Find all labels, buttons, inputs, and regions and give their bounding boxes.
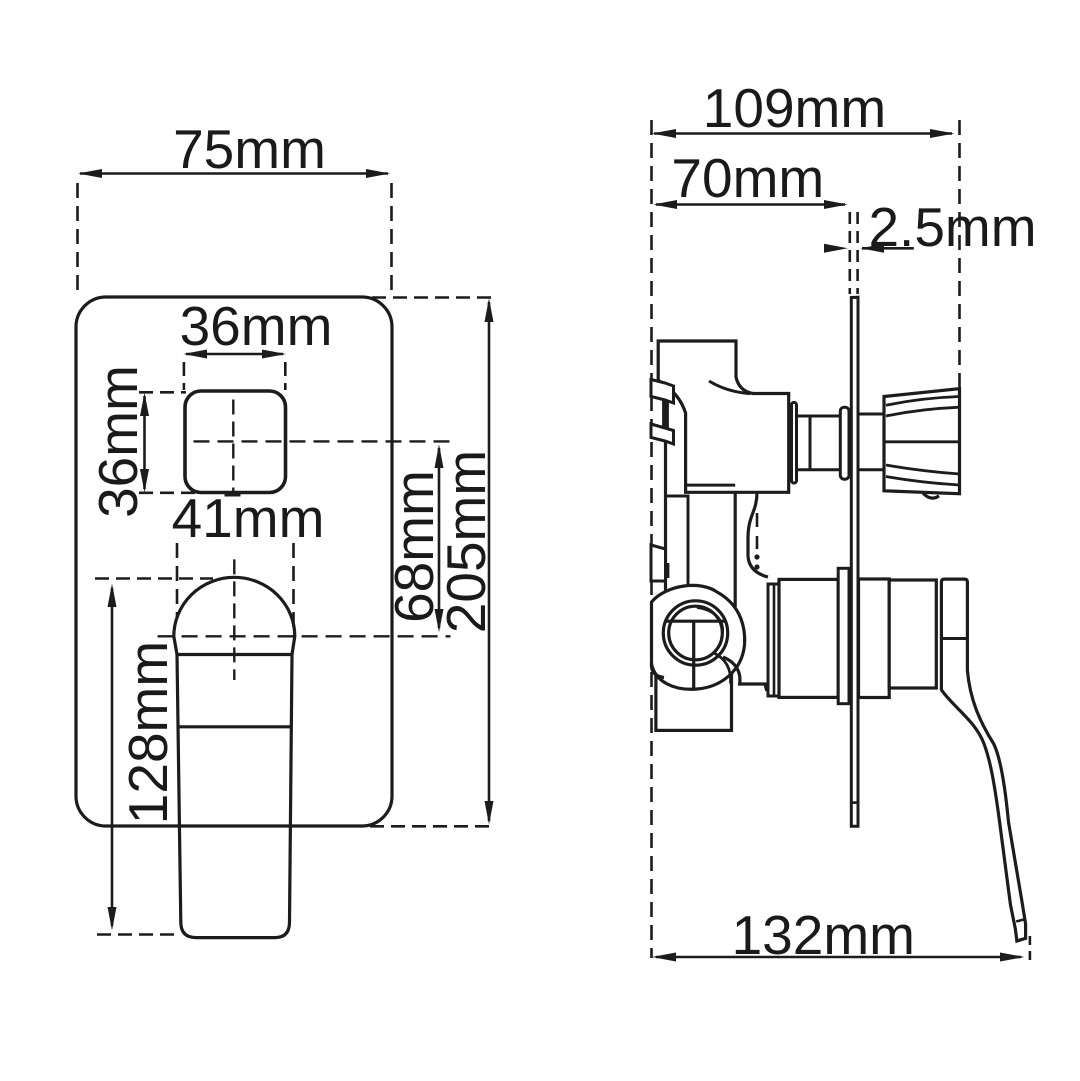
svg-text:41mm: 41mm: [172, 487, 325, 549]
svg-text:36mm: 36mm: [87, 365, 149, 518]
svg-text:70mm: 70mm: [671, 147, 824, 209]
svg-text:75mm: 75mm: [173, 118, 326, 180]
svg-text:128mm: 128mm: [117, 641, 179, 824]
svg-text:109mm: 109mm: [703, 77, 886, 139]
svg-text:36mm: 36mm: [180, 295, 333, 357]
